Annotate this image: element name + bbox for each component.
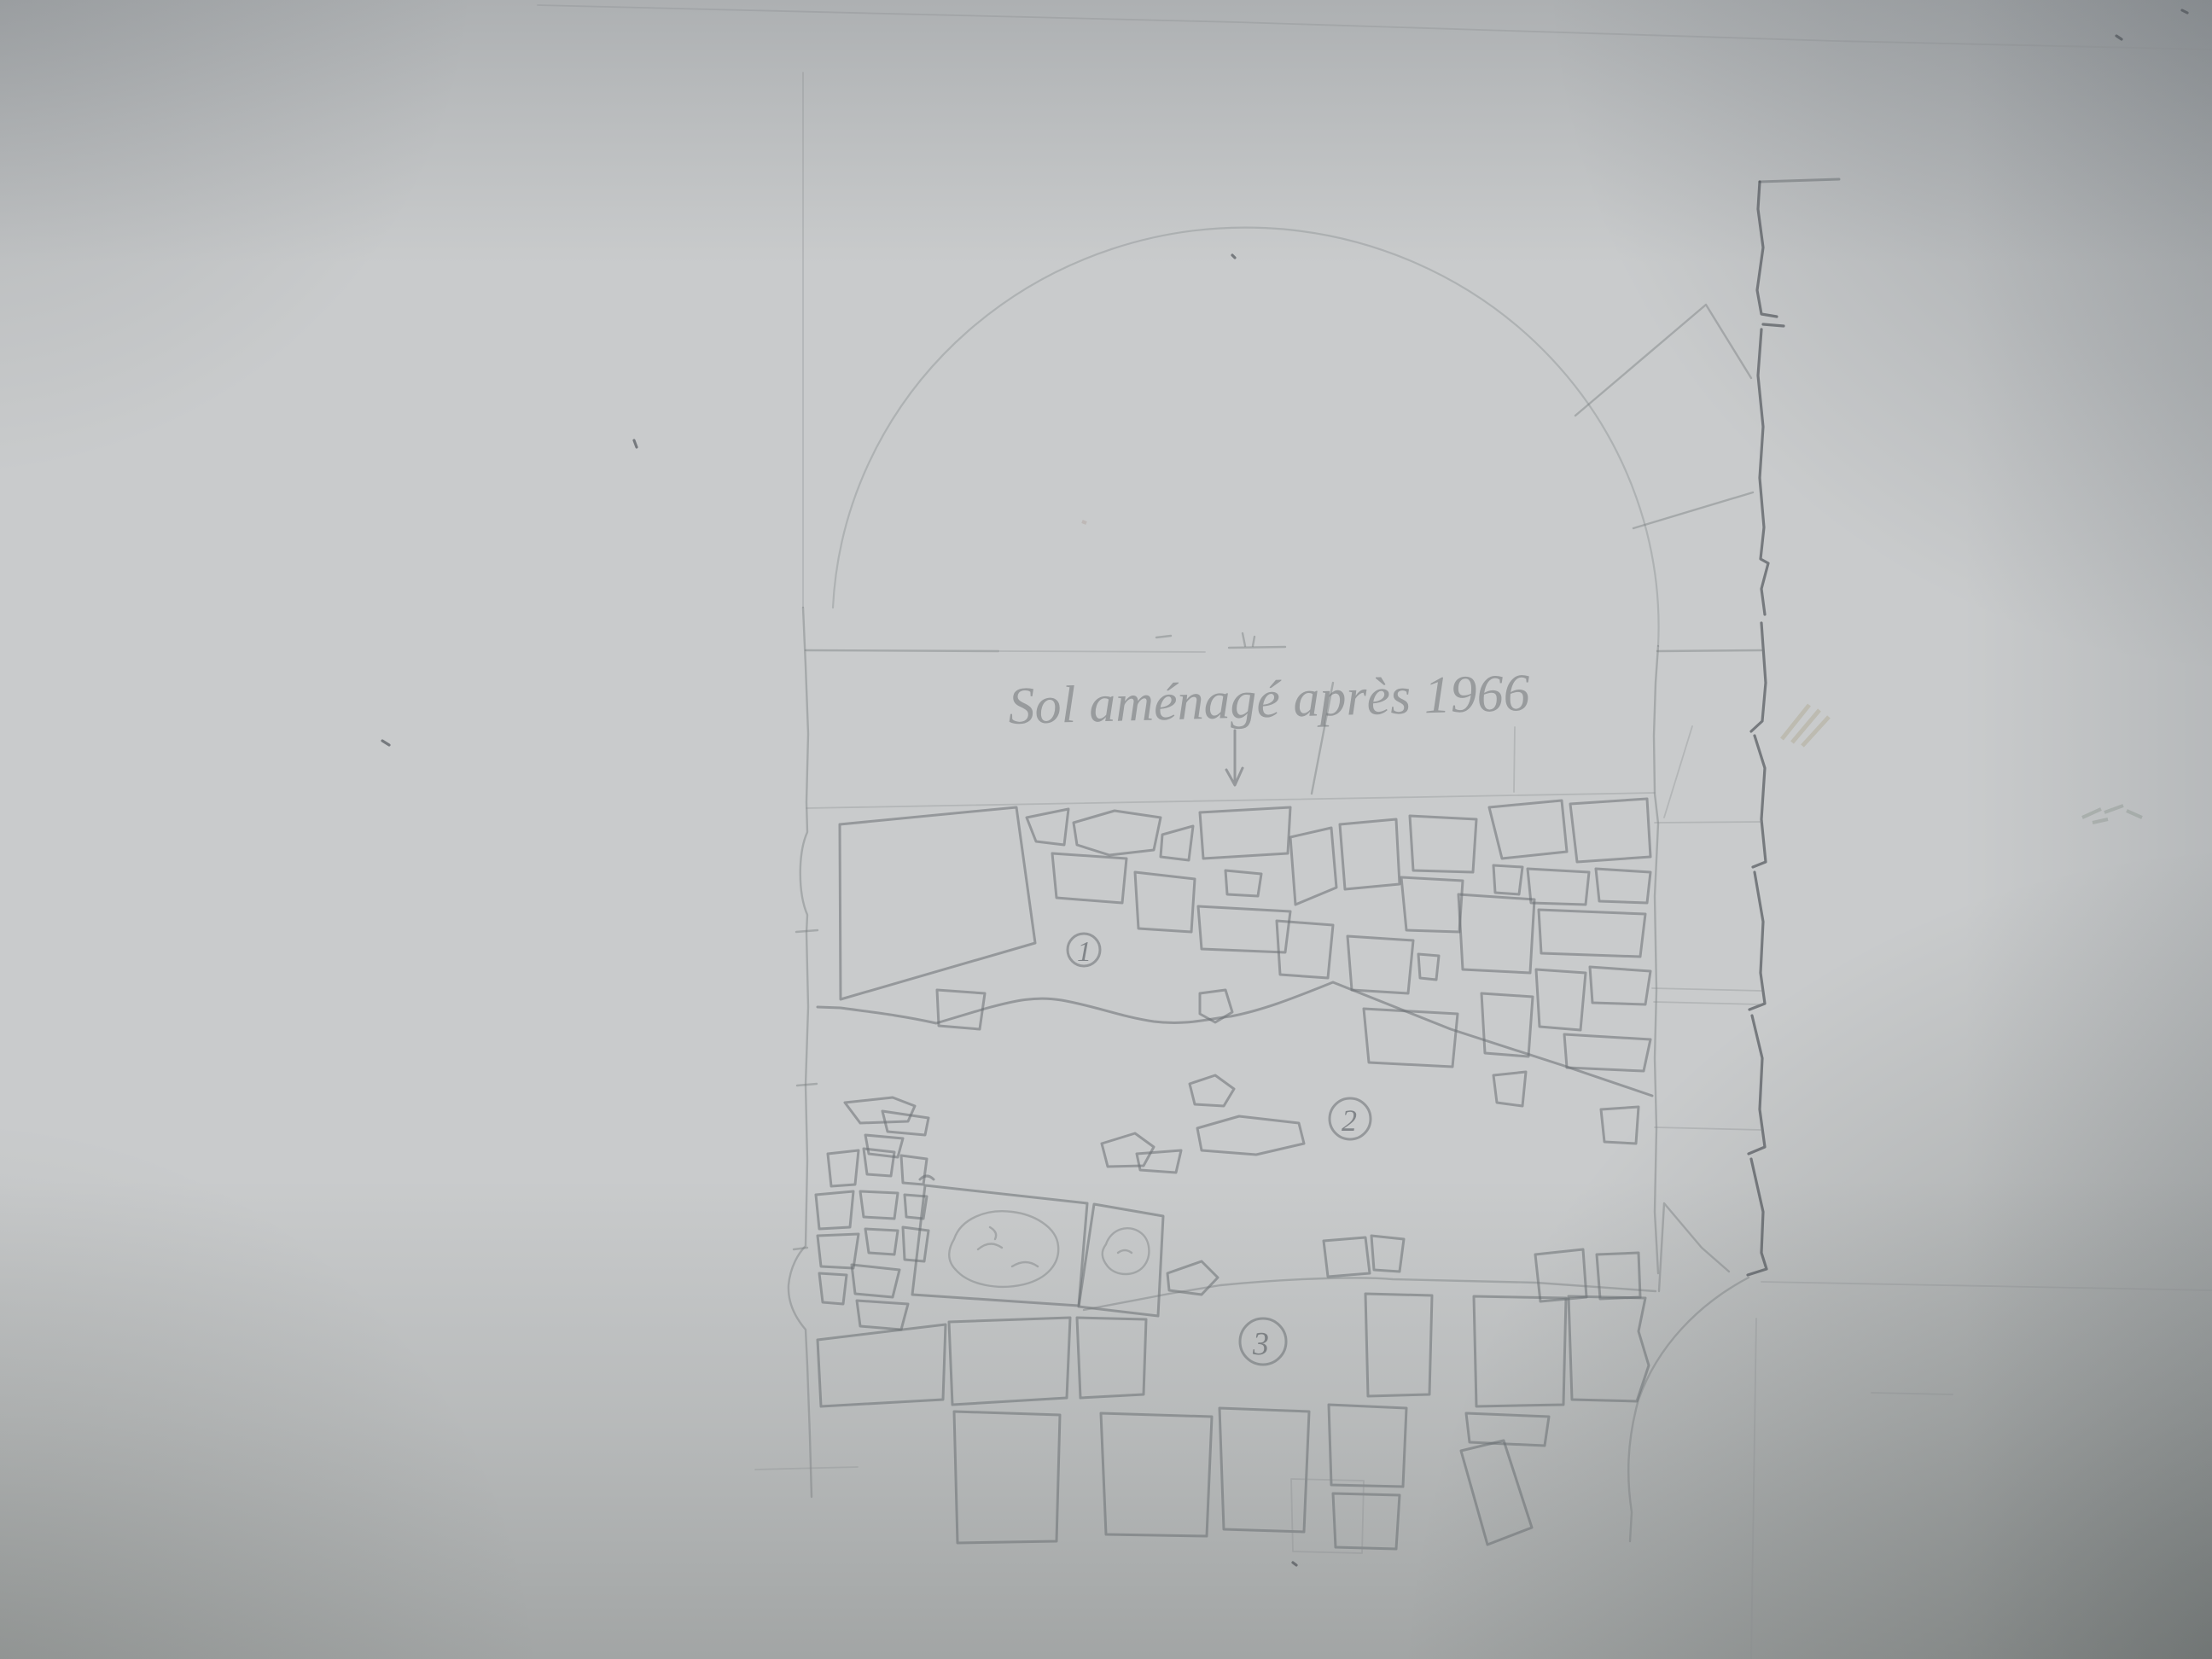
svg-text:2: 2: [1342, 1103, 1357, 1138]
svg-text:1: 1: [1077, 936, 1091, 968]
svg-text:3: 3: [1252, 1326, 1269, 1362]
